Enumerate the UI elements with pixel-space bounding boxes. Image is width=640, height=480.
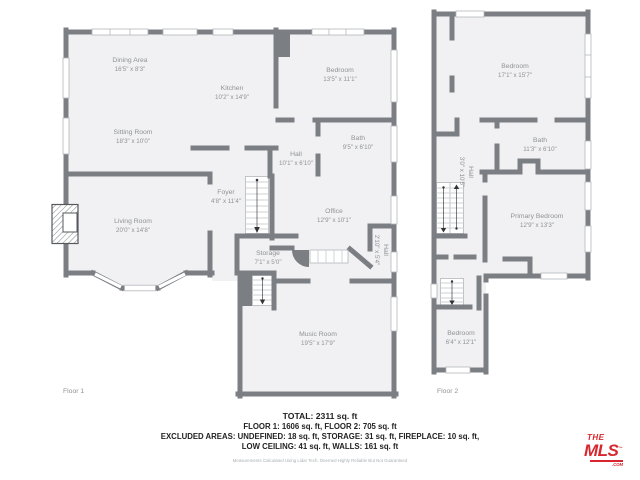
room-label-foyer: Foyer 4'8" x 11'4": [211, 188, 241, 206]
logo-mls-text: MLS: [584, 441, 618, 460]
room-dims: 7'1" x 5'0": [254, 258, 281, 267]
room-name: Music Room: [299, 330, 337, 340]
room-dims: 10'1" x 6'10": [279, 159, 313, 168]
room-name: Foyer: [211, 188, 241, 198]
room-label-bath-f1: Bath 9'5" x 6'10": [343, 134, 374, 152]
the-mls-logo: THE MLS™ .COM: [584, 434, 628, 468]
floor2-main-stairs-icon: [437, 183, 464, 234]
floor2-caption: Floor 2: [437, 388, 458, 395]
room-label-bedroom-f1: Bedroom 13'5" x 11'1": [323, 66, 356, 84]
room-name: Kitchen: [215, 84, 249, 94]
room-name: Storage: [254, 249, 281, 259]
room-label-office: Office 12'9" x 10'1": [317, 207, 351, 225]
room-dims: 20'0" x 14'8": [114, 226, 152, 235]
room-dims: 10'2" x 14'9": [215, 93, 249, 102]
room-label-primary-bedroom: Primary Bedroom 12'9" x 13'3": [511, 212, 564, 230]
room-dims: 18'3" x 10'0": [114, 137, 153, 146]
room-dims: 11'3" x 6'10": [523, 145, 556, 154]
floor-plan-page: Dining Area 16'5" x 8'3" Kitchen 10'2" x…: [0, 0, 640, 480]
room-label-storage: Storage 7'1" x 5'0": [254, 249, 281, 267]
room-dims: 2'10" x 5'4": [372, 235, 381, 266]
floor1-foyer-stairs-icon: [246, 177, 269, 234]
total-area: TOTAL: 2311 sq. ft: [0, 411, 640, 422]
room-name: Living Room: [114, 217, 152, 227]
room-dims: 17'1" x 15'7": [498, 71, 532, 80]
room-name: Office: [317, 207, 351, 217]
room-name: Bedroom: [323, 66, 356, 76]
excluded-areas-line1: EXCLUDED AREAS: UNDEFINED: 18 sq. ft, ST…: [0, 432, 640, 442]
chimney: [276, 34, 290, 57]
logo-com: .COM: [584, 463, 623, 467]
room-label-bedroom1-f2: Bedroom 17'1" x 15'7": [498, 62, 532, 80]
room-label-bath-f2: Bath 11'3" x 6'10": [523, 136, 556, 154]
floor1-caption: Floor 1: [63, 388, 84, 395]
floor-areas: FLOOR 1: 1606 sq. ft, FLOOR 2: 705 sq. f…: [0, 422, 640, 432]
room-name: Primary Bedroom: [511, 212, 564, 222]
excluded-areas-line2: LOW CEILING: 41 sq. ft, WALLS: 161 sq. f…: [0, 442, 640, 452]
room-name: Sitting Room: [114, 128, 153, 138]
floor-plan-drawing: [0, 0, 640, 480]
room-dims: 3'0" x 10'5": [457, 157, 466, 188]
floor1-basement-stairs-icon: [240, 275, 273, 306]
room-name: Bath: [343, 134, 374, 144]
room-label-music-room: Music Room 19'5" x 17'9": [299, 330, 337, 348]
room-dims: 13'5" x 11'1": [323, 75, 356, 84]
logo-tm: ™: [618, 445, 622, 450]
room-dims: 9'5" x 6'10": [343, 143, 374, 152]
room-dims: 19'5" x 17'9": [299, 339, 337, 348]
area-summary: TOTAL: 2311 sq. ft FLOOR 1: 1606 sq. ft,…: [0, 411, 640, 463]
room-label-hall-f2: Hall 3'0" x 10'5": [457, 157, 475, 188]
room-name: Bedroom: [446, 329, 477, 339]
fireplace-icon: [52, 205, 78, 244]
room-dims: 4'8" x 11'4": [211, 197, 241, 206]
disclaimer: Measurements Calculated Using Lidar Tech…: [0, 458, 640, 463]
room-name: Hall: [279, 150, 313, 160]
logo-mls: MLS™: [584, 442, 628, 459]
room-label-dining-area: Dining Area 16'5" x 8'3": [112, 56, 147, 74]
room-label-living-room: Living Room 20'0" x 14'8": [114, 217, 152, 235]
room-dims: 6'4" x 12'1": [446, 338, 477, 347]
floor2-wing-stairs-icon: [441, 279, 464, 307]
room-label-bedroom2-f2: Bedroom 6'4" x 12'1": [446, 329, 477, 347]
room-name: Bedroom: [498, 62, 532, 72]
room-name: Dining Area: [112, 56, 147, 66]
room-name: Hall: [466, 157, 476, 188]
room-label-kitchen: Kitchen 10'2" x 14'9": [215, 84, 249, 102]
room-dims: 12'9" x 13'3": [511, 221, 564, 230]
room-dims: 16'5" x 8'3": [112, 65, 147, 74]
room-label-sitting-room: Sitting Room 18'3" x 10'0": [114, 128, 153, 146]
room-label-hall2-f1: Hall 2'10" x 5'4": [372, 235, 390, 266]
room-name: Bath: [523, 136, 556, 146]
room-dims: 12'9" x 10'1": [317, 216, 351, 225]
room-label-hall-f1: Hall 10'1" x 6'10": [279, 150, 313, 168]
room-name: Hall: [381, 235, 391, 266]
